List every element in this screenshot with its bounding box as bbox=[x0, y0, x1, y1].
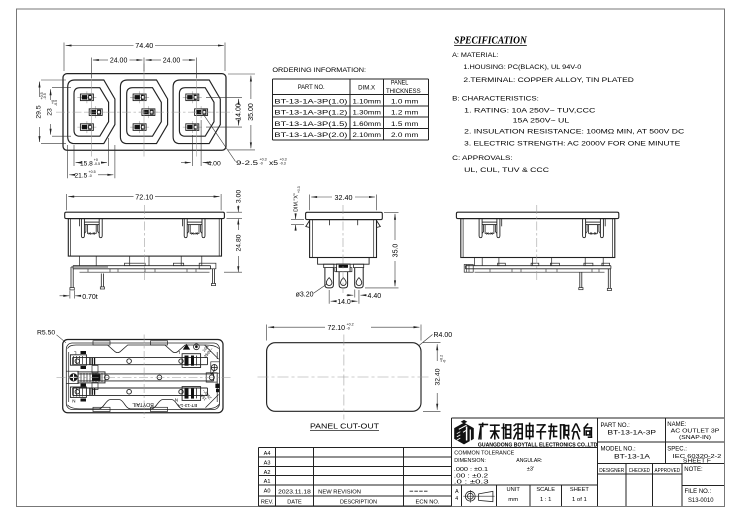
svg-text:S13-0010: S13-0010 bbox=[688, 497, 714, 504]
svg-text:2.10mm: 2.10mm bbox=[353, 132, 382, 139]
svg-text:FILE NO.:: FILE NO.: bbox=[685, 489, 712, 495]
svg-text:74.40: 74.40 bbox=[135, 41, 153, 50]
svg-text:A3: A3 bbox=[264, 460, 271, 466]
svg-text:N: N bbox=[72, 399, 75, 404]
svg-text:GUANGDONG BOYTALL ELECTRONICS: GUANGDONG BOYTALL ELECTRONICS CO.,LTD bbox=[478, 442, 597, 448]
svg-text:-0: -0 bbox=[442, 360, 446, 363]
svg-text:-0.3: -0.3 bbox=[280, 162, 286, 166]
svg-text:1. RATING: 10A 250V~ TUV,C: 1. RATING: 10A 250V~ TUV,CCC bbox=[464, 108, 596, 115]
svg-text:x5: x5 bbox=[269, 160, 278, 167]
svg-text:APPROVED: APPROVED bbox=[655, 468, 681, 474]
svg-text:SPECIFICATION: SPECIFICATION bbox=[454, 36, 527, 47]
svg-text:UNIT: UNIT bbox=[507, 487, 521, 493]
svg-text:A1: A1 bbox=[264, 479, 271, 485]
svg-text:1 of 1: 1 of 1 bbox=[572, 497, 587, 503]
svg-text:-0: -0 bbox=[89, 174, 92, 178]
svg-text:BT-13-1A-3P(2.0): BT-13-1A-3P(2.0) bbox=[274, 132, 347, 139]
svg-text:1.60mm: 1.60mm bbox=[353, 121, 382, 128]
svg-text:BT-13-1A-3P: BT-13-1A-3P bbox=[608, 430, 657, 437]
svg-text:X.X: X.X bbox=[191, 231, 198, 236]
svg-text:B: CHARACTERISTICS:: B: CHARACTERISTICS: bbox=[452, 96, 539, 103]
svg-text:24.80: 24.80 bbox=[235, 234, 242, 251]
svg-text:ANGULAR:: ANGULAR: bbox=[516, 458, 542, 464]
svg-text:ø3.20: ø3.20 bbox=[296, 292, 314, 299]
svg-text:PART NO.:: PART NO.: bbox=[601, 423, 631, 429]
svg-text:32.40: 32.40 bbox=[335, 193, 353, 202]
svg-text:DIMENSION:: DIMENSION: bbox=[454, 458, 486, 464]
svg-text:32.40: 32.40 bbox=[434, 368, 441, 385]
svg-text:.0 : ±0.3: .0 : ±0.3 bbox=[454, 479, 489, 485]
svg-text:0.70t: 0.70t bbox=[82, 294, 98, 301]
svg-text:2. INSULATION RESISTANCE: 1: 2. INSULATION RESISTANCE: 100MΩ MIN, AT … bbox=[464, 129, 684, 136]
svg-text:4.00: 4.00 bbox=[208, 160, 221, 167]
svg-text:PANEL CUT-OUT: PANEL CUT-OUT bbox=[310, 421, 380, 430]
svg-text:THICKNESS: THICKNESS bbox=[386, 88, 421, 95]
svg-text:AC OUTLET 3P: AC OUTLET 3P bbox=[671, 429, 720, 435]
svg-text:2.0 mm: 2.0 mm bbox=[391, 132, 418, 139]
svg-text:A4: A4 bbox=[264, 451, 271, 457]
svg-text:N: N bbox=[175, 398, 178, 403]
svg-text:72.10: 72.10 bbox=[135, 192, 153, 201]
svg-text:UL, CUL, TUV & CCC: UL, CUL, TUV & CCC bbox=[464, 167, 549, 174]
svg-text:1 : 1: 1 : 1 bbox=[540, 497, 551, 503]
svg-text:1.5 mm: 1.5 mm bbox=[391, 121, 418, 128]
svg-text:C: APPROVALS:: C: APPROVALS: bbox=[452, 155, 513, 162]
svg-text:72.10: 72.10 bbox=[328, 325, 346, 332]
svg-text:9-2.5: 9-2.5 bbox=[236, 160, 258, 167]
svg-text:1.HOUSING: PC(BLACK), UL 94V-: 1.HOUSING: PC(BLACK), UL 94V-0 bbox=[463, 64, 581, 71]
svg-text:DATE: DATE bbox=[287, 500, 302, 506]
svg-text:15.8: 15.8 bbox=[80, 160, 93, 167]
svg-text:X.X: X.X bbox=[486, 231, 493, 236]
svg-text:X.X: X.X bbox=[88, 231, 95, 236]
svg-text:CHECKED: CHECKED bbox=[629, 468, 650, 474]
svg-text:14.0: 14.0 bbox=[337, 299, 351, 306]
svg-text:1.10mm: 1.10mm bbox=[353, 98, 382, 105]
svg-text:SCALE: SCALE bbox=[536, 487, 555, 493]
svg-text:4: 4 bbox=[455, 496, 458, 502]
svg-text:DESIGNER: DESIGNER bbox=[599, 468, 624, 474]
svg-text:A: A bbox=[455, 489, 459, 495]
svg-text:BT-13-1A: BT-13-1A bbox=[177, 403, 197, 408]
svg-text:PART NO.: PART NO. bbox=[298, 84, 325, 91]
svg-text:3. ELECTRIC STRENGTH: AC 2: 3. ELECTRIC STRENGTH: AC 2000V FOR ONE M… bbox=[464, 141, 681, 148]
svg-text:-0.5: -0.5 bbox=[43, 93, 47, 99]
svg-text:24.00: 24.00 bbox=[163, 58, 181, 65]
svg-text:-0: -0 bbox=[260, 162, 263, 166]
svg-text:R5.50: R5.50 bbox=[37, 329, 55, 336]
svg-text:21.5: 21.5 bbox=[75, 173, 88, 180]
svg-text:A: MATERIAL:: A: MATERIAL: bbox=[452, 52, 499, 59]
svg-text:BOYTAIL: BOYTAIL bbox=[132, 401, 154, 407]
svg-text:X.X: X.X bbox=[589, 231, 596, 236]
svg-text:A2: A2 bbox=[264, 470, 271, 476]
svg-text:NAME:: NAME: bbox=[667, 422, 686, 428]
svg-text:3.00: 3.00 bbox=[236, 190, 243, 203]
svg-text:NEW REVISION: NEW REVISION bbox=[318, 489, 361, 495]
svg-text:SPEC.:: SPEC.: bbox=[667, 446, 687, 452]
svg-text:2023.11.18: 2023.11.18 bbox=[278, 489, 311, 495]
svg-text:1.2 mm: 1.2 mm bbox=[391, 110, 418, 117]
svg-text:PANEL: PANEL bbox=[391, 80, 409, 87]
svg-text:23: 23 bbox=[46, 108, 53, 116]
svg-text:4.40: 4.40 bbox=[368, 293, 382, 300]
svg-text:DESCRIPTION: DESCRIPTION bbox=[340, 500, 377, 506]
svg-text:DIM."X": DIM."X" bbox=[293, 193, 299, 212]
svg-text:2.TERMINAL: COPPER ALLOY, TIN: 2.TERMINAL: COPPER ALLOY, TIN PLATED bbox=[463, 77, 634, 84]
svg-text:BT-13-1A: BT-13-1A bbox=[614, 453, 651, 460]
svg-text:SHEET: SHEET bbox=[570, 487, 589, 493]
svg-text:.000 : ±0.1: .000 : ±0.1 bbox=[454, 467, 488, 473]
svg-text:29.5: 29.5 bbox=[35, 105, 42, 118]
svg-text:SHEET F: SHEET F bbox=[683, 458, 712, 464]
svg-text:DIM.X: DIM.X bbox=[358, 84, 376, 91]
svg-text:BT-13-1A-3P(1.5): BT-13-1A-3P(1.5) bbox=[274, 121, 347, 128]
svg-text:BT-13-1A-3P(1.2): BT-13-1A-3P(1.2) bbox=[274, 110, 347, 117]
svg-text:+0.3: +0.3 bbox=[297, 186, 301, 193]
svg-text:ORDERING INFORMATION:: ORDERING INFORMATION: bbox=[272, 67, 366, 74]
svg-text:BT-13-1A-3P(1.0): BT-13-1A-3P(1.0) bbox=[274, 98, 347, 105]
svg-text:-0: -0 bbox=[347, 327, 350, 331]
svg-text:COMMON TOLERANCE: COMMON TOLERANCE bbox=[454, 451, 514, 457]
svg-text:MODEL NO.:: MODEL NO.: bbox=[601, 446, 636, 452]
svg-text:-0.5: -0.5 bbox=[54, 100, 58, 106]
svg-text:14.00: 14.00 bbox=[236, 103, 243, 121]
svg-text:±3': ±3' bbox=[527, 467, 534, 473]
svg-text:REV.: REV. bbox=[261, 500, 274, 506]
svg-text:mm: mm bbox=[508, 497, 518, 503]
svg-text:(SNAP-IN): (SNAP-IN) bbox=[679, 435, 711, 441]
svg-text:-0.5: -0.5 bbox=[94, 162, 100, 166]
svg-text:35.0: 35.0 bbox=[392, 244, 399, 258]
svg-text:A0: A0 bbox=[264, 489, 271, 495]
svg-text:35.00: 35.00 bbox=[248, 103, 255, 121]
svg-text:1.0 mm: 1.0 mm bbox=[391, 98, 418, 105]
svg-text:15A 250V~ UL: 15A 250V~ UL bbox=[513, 118, 570, 125]
svg-text:NOTE:: NOTE: bbox=[684, 467, 703, 473]
svg-text:24.00: 24.00 bbox=[110, 58, 128, 65]
svg-text:1.30mm: 1.30mm bbox=[353, 110, 382, 117]
svg-text:ECN NO.: ECN NO. bbox=[416, 500, 440, 506]
svg-text:R4.00: R4.00 bbox=[434, 332, 453, 339]
